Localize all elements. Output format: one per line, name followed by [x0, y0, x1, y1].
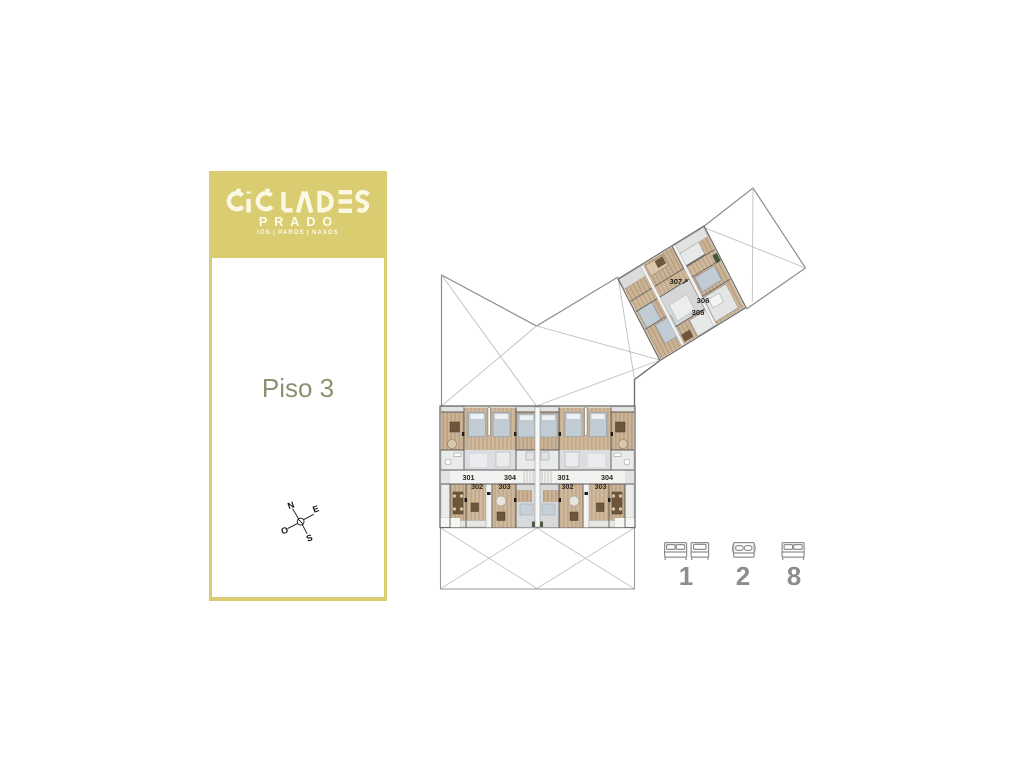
svg-text:303: 303	[595, 482, 607, 491]
svg-text:305: 305	[692, 308, 705, 317]
svg-text:301: 301	[463, 473, 475, 482]
svg-text:303: 303	[499, 482, 511, 491]
svg-text:307↗: 307↗	[669, 277, 688, 286]
svg-text:8: 8	[787, 561, 801, 591]
svg-text:306: 306	[697, 296, 710, 305]
svg-text:304: 304	[601, 473, 613, 482]
svg-text:2: 2	[736, 561, 750, 591]
svg-text:304: 304	[504, 473, 516, 482]
svg-text:302: 302	[471, 482, 483, 491]
svg-text:302: 302	[562, 482, 574, 491]
svg-text:1: 1	[679, 561, 693, 591]
svg-text:301: 301	[558, 473, 570, 482]
